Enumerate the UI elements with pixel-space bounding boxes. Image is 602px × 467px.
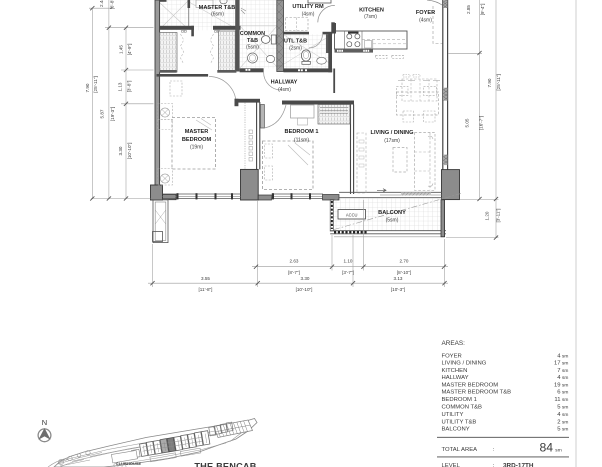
svg-text:UTILITY T&B: UTILITY T&B xyxy=(442,419,477,425)
svg-text:sm: sm xyxy=(562,420,568,425)
svg-text:COMMON T&B: COMMON T&B xyxy=(442,405,483,411)
svg-text:sm: sm xyxy=(562,406,568,411)
svg-text:BEDROOM: BEDROOM xyxy=(182,137,212,143)
svg-text:MASTER BEDROOM T&B: MASTER BEDROOM T&B xyxy=(442,390,512,396)
svg-text:N: N xyxy=(42,418,47,427)
svg-text:(19m): (19m) xyxy=(190,144,203,150)
svg-text:(4sm): (4sm) xyxy=(302,12,315,18)
svg-text:[6'-8"]: [6'-8"] xyxy=(109,0,114,9)
svg-text:sm: sm xyxy=(555,448,561,453)
svg-text:(7sm): (7sm) xyxy=(364,14,377,20)
svg-text:(4sm): (4sm) xyxy=(419,17,432,23)
svg-text:sm: sm xyxy=(562,428,568,433)
svg-text:[3'-8"]: [3'-8"] xyxy=(126,81,131,93)
svg-text:LIVING / DINING: LIVING / DINING xyxy=(371,130,414,136)
svg-text:1.20: 1.20 xyxy=(485,211,490,220)
svg-text:MASTER BEDROOM: MASTER BEDROOM xyxy=(442,382,499,388)
svg-text:[25'-11"]: [25'-11"] xyxy=(93,76,98,92)
svg-text:17: 17 xyxy=(554,361,561,367)
svg-text:[10'-3"]: [10'-3"] xyxy=(391,287,405,292)
svg-text:BALCONY: BALCONY xyxy=(378,210,406,216)
svg-text:3.30: 3.30 xyxy=(118,146,123,155)
svg-text:3RD-17TH: 3RD-17TH xyxy=(503,462,534,467)
svg-text:AREAS:: AREAS: xyxy=(442,340,466,347)
svg-text:TOTAL AREA: TOTAL AREA xyxy=(442,447,478,453)
svg-text:HALLWAY: HALLWAY xyxy=(271,80,298,86)
svg-text:(17sm): (17sm) xyxy=(384,138,400,144)
svg-text:sm: sm xyxy=(562,355,568,360)
svg-text:19: 19 xyxy=(554,382,561,388)
svg-text:[8'-7"]: [8'-7"] xyxy=(288,270,300,275)
svg-text:84: 84 xyxy=(540,440,554,454)
svg-text:3.13: 3.13 xyxy=(394,276,403,281)
svg-text:UTILITY: UTILITY xyxy=(442,412,464,418)
svg-text:2: 2 xyxy=(557,419,560,425)
svg-text:2.44: 2.44 xyxy=(99,0,104,7)
svg-text:sm: sm xyxy=(562,398,568,403)
svg-text:3.55: 3.55 xyxy=(201,276,210,281)
svg-text:2.70: 2.70 xyxy=(400,259,409,264)
svg-text:7: 7 xyxy=(557,368,560,374)
svg-text:UTL T&B: UTL T&B xyxy=(284,39,307,45)
svg-text:[9'-4"]: [9'-4"] xyxy=(480,4,485,16)
svg-text:CLUBHOUSE: CLUBHOUSE xyxy=(116,461,142,466)
svg-text:[25'-11"]: [25'-11"] xyxy=(496,74,501,90)
svg-text:COMMON: COMMON xyxy=(240,31,265,37)
svg-text:FOYER: FOYER xyxy=(442,354,462,360)
svg-text:MASTER T&B: MASTER T&B xyxy=(199,5,236,11)
svg-text:KITCHEN: KITCHEN xyxy=(359,7,384,13)
svg-text:[19'-3"]: [19'-3"] xyxy=(110,107,115,121)
svg-text:KITCHEN: KITCHEN xyxy=(442,368,468,374)
svg-text:sm: sm xyxy=(562,383,568,388)
svg-text:7.90: 7.90 xyxy=(85,83,90,92)
svg-text:2.63: 2.63 xyxy=(290,259,299,264)
svg-text:BEDROOM 1: BEDROOM 1 xyxy=(285,129,319,135)
svg-text:[10'-10"]: [10'-10"] xyxy=(127,143,132,160)
svg-text:sm: sm xyxy=(562,376,568,381)
svg-text:UTILITY RM: UTILITY RM xyxy=(292,4,324,10)
svg-text:HALLWAY: HALLWAY xyxy=(442,375,469,381)
svg-text:5.05: 5.05 xyxy=(465,118,470,127)
svg-text:(2sm): (2sm) xyxy=(289,46,302,52)
svg-text:3.30: 3.30 xyxy=(301,276,310,281)
svg-text:[3'-11"]: [3'-11"] xyxy=(495,209,500,223)
svg-text:(11sm): (11sm) xyxy=(294,138,310,144)
svg-text:BALCONY: BALCONY xyxy=(442,427,470,433)
svg-text:ACCU: ACCU xyxy=(346,212,358,217)
svg-text:sm: sm xyxy=(562,413,568,418)
svg-text:1.10: 1.10 xyxy=(344,259,353,264)
svg-text:(4sm): (4sm) xyxy=(278,87,291,93)
svg-text:sm: sm xyxy=(562,369,568,374)
svg-text:(6sm): (6sm) xyxy=(211,12,224,18)
svg-text:2.85: 2.85 xyxy=(466,5,471,14)
svg-text:sm: sm xyxy=(562,391,568,396)
svg-text:1.45: 1.45 xyxy=(118,45,123,54)
svg-text:LIVING / DINING: LIVING / DINING xyxy=(442,361,487,367)
svg-text:BEDROOM 1: BEDROOM 1 xyxy=(442,397,477,403)
svg-text:[10'-10"]: [10'-10"] xyxy=(296,287,313,292)
svg-text:LEVEL: LEVEL xyxy=(442,463,461,467)
svg-text:[4'-9"]: [4'-9"] xyxy=(127,44,132,56)
svg-text:[8'-10"]: [8'-10"] xyxy=(397,270,411,275)
svg-text:THE BENCAB: THE BENCAB xyxy=(194,462,256,467)
svg-text:(5sm): (5sm) xyxy=(246,45,259,51)
svg-text:[11'-8"]: [11'-8"] xyxy=(199,287,213,292)
svg-text:sm: sm xyxy=(562,362,568,367)
svg-text:[16'-7"]: [16'-7"] xyxy=(479,116,484,130)
svg-text:MASTER: MASTER xyxy=(185,129,209,135)
svg-text:FOYER: FOYER xyxy=(416,10,435,16)
svg-text:1.13: 1.13 xyxy=(118,82,123,91)
svg-text:T&B: T&B xyxy=(247,38,258,44)
svg-text:7.90: 7.90 xyxy=(487,78,492,87)
svg-text:[3'-7"]: [3'-7"] xyxy=(342,270,354,275)
svg-text:(5sm): (5sm) xyxy=(386,218,399,224)
svg-text:5.87: 5.87 xyxy=(100,109,105,118)
svg-text:11: 11 xyxy=(554,397,560,403)
